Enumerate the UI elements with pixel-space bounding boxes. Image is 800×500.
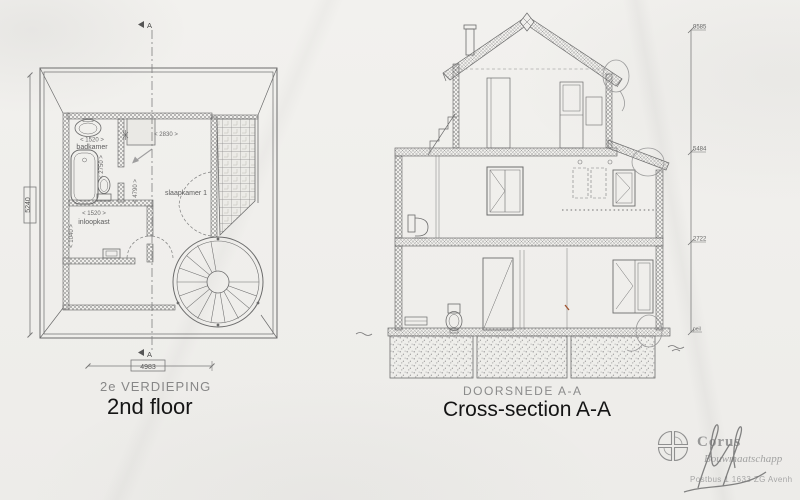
spiral-staircase xyxy=(173,237,263,327)
second-floor xyxy=(395,156,663,238)
cross-section-drawing: 9585 5484 2722 peil xyxy=(350,0,720,395)
door-swings xyxy=(127,172,211,258)
plan-texts: < 1520 > badkamer < 2750 > < 1520 > inlo… xyxy=(69,132,207,248)
section-letter-bottom: A xyxy=(147,350,152,359)
chimney xyxy=(464,25,476,55)
elevation-second-floor: 2722 xyxy=(693,237,707,243)
foundation xyxy=(390,336,655,378)
toilet-plan xyxy=(97,177,111,202)
elevation-dimension: 9585 5484 2722 peil xyxy=(688,25,707,336)
inloopkast-width-dim: < 1520 > xyxy=(82,211,106,217)
elevation-ridge: 9585 xyxy=(693,25,707,31)
company-stamp: Corus Bouwmaatschapp Postbus 1 1633 ZG A… xyxy=(640,422,800,500)
inloopkast-label: inloopkast xyxy=(78,219,110,226)
section-arrow-bottom xyxy=(138,349,144,356)
window-right-upper xyxy=(613,170,635,206)
elevation-ground-level: peil xyxy=(693,327,701,333)
elevation-attic-floor: 5484 xyxy=(693,147,707,153)
appliance xyxy=(103,249,120,258)
interior-walls xyxy=(520,248,567,330)
roof xyxy=(443,13,622,87)
stair-treads xyxy=(177,241,259,322)
cross-section-title-print: DOORSNEDE A-A xyxy=(463,384,583,398)
slaapkamer-depth-dim: < 4790 > xyxy=(133,179,139,203)
ground-slab xyxy=(388,328,670,336)
ground-floor xyxy=(395,246,663,333)
low-cabinet xyxy=(405,317,427,325)
plan-width-dimension: 4983 xyxy=(86,360,215,371)
window-right-ground xyxy=(613,260,653,313)
bathtub xyxy=(71,150,98,204)
slaapkamer-label: slaapkamer 1 xyxy=(165,190,207,197)
roof-terrace xyxy=(217,115,258,235)
badkamer-depth-dim: < 2750 > xyxy=(99,155,105,179)
scanned-drawing-page: A A < 1520 > badkamer < 2750 > < 1520 > … xyxy=(0,0,800,500)
attic xyxy=(428,64,612,155)
sink xyxy=(75,119,101,137)
inloopkast-depth-dim: < 1040 > xyxy=(69,224,75,248)
floor-plan-title-print: 2e VERDIEPING xyxy=(100,379,211,394)
plan-depth-dimension: 5240 xyxy=(24,73,36,338)
signature-scribble xyxy=(668,414,788,499)
toilet-upper xyxy=(408,215,428,238)
slaapkamer-width-dim: < 2830 > xyxy=(154,132,178,138)
badkamer-width-dim: < 1520 > xyxy=(80,138,104,144)
cross-section-title-annotation: Cross-section A-A xyxy=(443,398,611,422)
floor-plan-drawing: A A < 1520 > badkamer < 2750 > < 1520 > … xyxy=(15,15,315,385)
floor-slabs xyxy=(388,140,670,336)
direction-arrow xyxy=(132,149,152,164)
floor-plan-title-annotation: 2nd floor xyxy=(107,394,193,420)
section-letter-top: A xyxy=(147,21,152,30)
window-center xyxy=(487,167,523,215)
section-arrow-top xyxy=(138,21,144,28)
door-section xyxy=(483,258,513,330)
plan-depth-value: 5240 xyxy=(25,197,32,213)
closet-dashed-outlines xyxy=(573,168,606,198)
plan-width-value: 4983 xyxy=(140,364,156,371)
badkamer-label: badkamer xyxy=(76,144,108,151)
closet xyxy=(123,119,155,145)
